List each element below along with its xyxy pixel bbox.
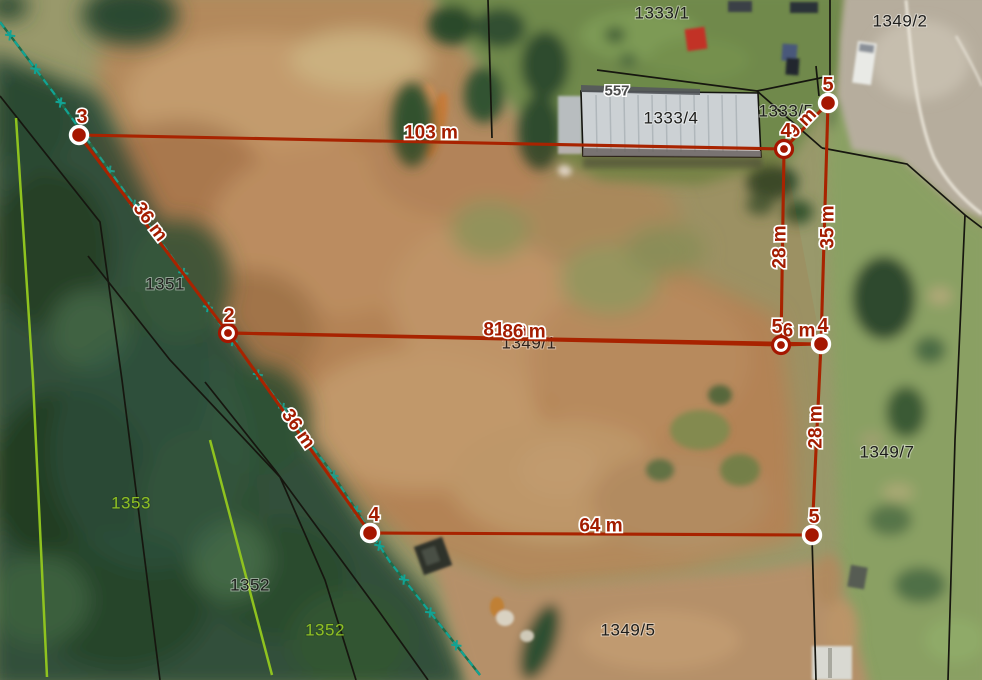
measure-vertex[interactable]: [813, 336, 830, 353]
measure-distance-label: 28 m: [806, 405, 827, 448]
measure-vertex[interactable]: [773, 337, 790, 354]
vertex-number-label: 3: [76, 106, 87, 128]
boundary-line: [948, 215, 965, 680]
parcel-number-label: 1349/5: [601, 621, 656, 640]
parcel-number-label: 1351: [145, 275, 185, 294]
parcel-number-label: 1333/4: [644, 109, 699, 128]
parcel-number-label: 1352: [230, 576, 270, 595]
map-canvas[interactable]: 1333/11349/25571333/41333/513511349/1134…: [0, 0, 982, 680]
boundary-line-green: [16, 118, 47, 677]
measure-distance-label: 28 m: [770, 225, 791, 268]
measure-distance-label: 103 m: [404, 123, 458, 144]
measure-distance-label: 64 m: [579, 516, 622, 537]
measure-vertex[interactable]: [362, 525, 379, 542]
vertex-number-label: 4: [368, 504, 380, 526]
parcel-number-label: 1349/2: [873, 12, 928, 31]
measure-vertex[interactable]: [776, 141, 793, 158]
measure-vertex[interactable]: [820, 95, 837, 112]
measure-vertex[interactable]: [220, 325, 237, 342]
boundary-line: [597, 0, 830, 91]
parcel-number-label: 1352: [305, 621, 345, 640]
boundary-line-green: [210, 440, 272, 675]
boundary-line: [816, 66, 819, 96]
vertex-number-label: 2: [223, 305, 234, 327]
boundary-line: [812, 537, 816, 680]
parcel-number-label: 1349/7: [860, 443, 915, 462]
map-annotations: 1333/11349/25571333/41333/513511349/1134…: [0, 0, 982, 680]
boundary-line: [822, 148, 982, 228]
measure-distance-label: 86 m: [502, 322, 545, 343]
parcel-number-label: 1333/1: [635, 4, 690, 23]
vertex-number-label: 5: [808, 506, 819, 528]
vertex-number-label: 5: [822, 74, 833, 96]
measured-area: [79, 135, 821, 535]
vertex-number-label: 4: [817, 315, 829, 337]
measure-distance-label: 35 m: [818, 205, 839, 248]
boundary-line: [488, 0, 492, 138]
measure-vertex[interactable]: [804, 527, 821, 544]
measure-vertex[interactable]: [71, 127, 88, 144]
parcel-number-label: 1353: [111, 494, 151, 513]
vertex-number-label: 4: [780, 120, 792, 142]
vertex-number-label: 5: [771, 316, 782, 338]
building-number-label: 557: [604, 83, 629, 100]
